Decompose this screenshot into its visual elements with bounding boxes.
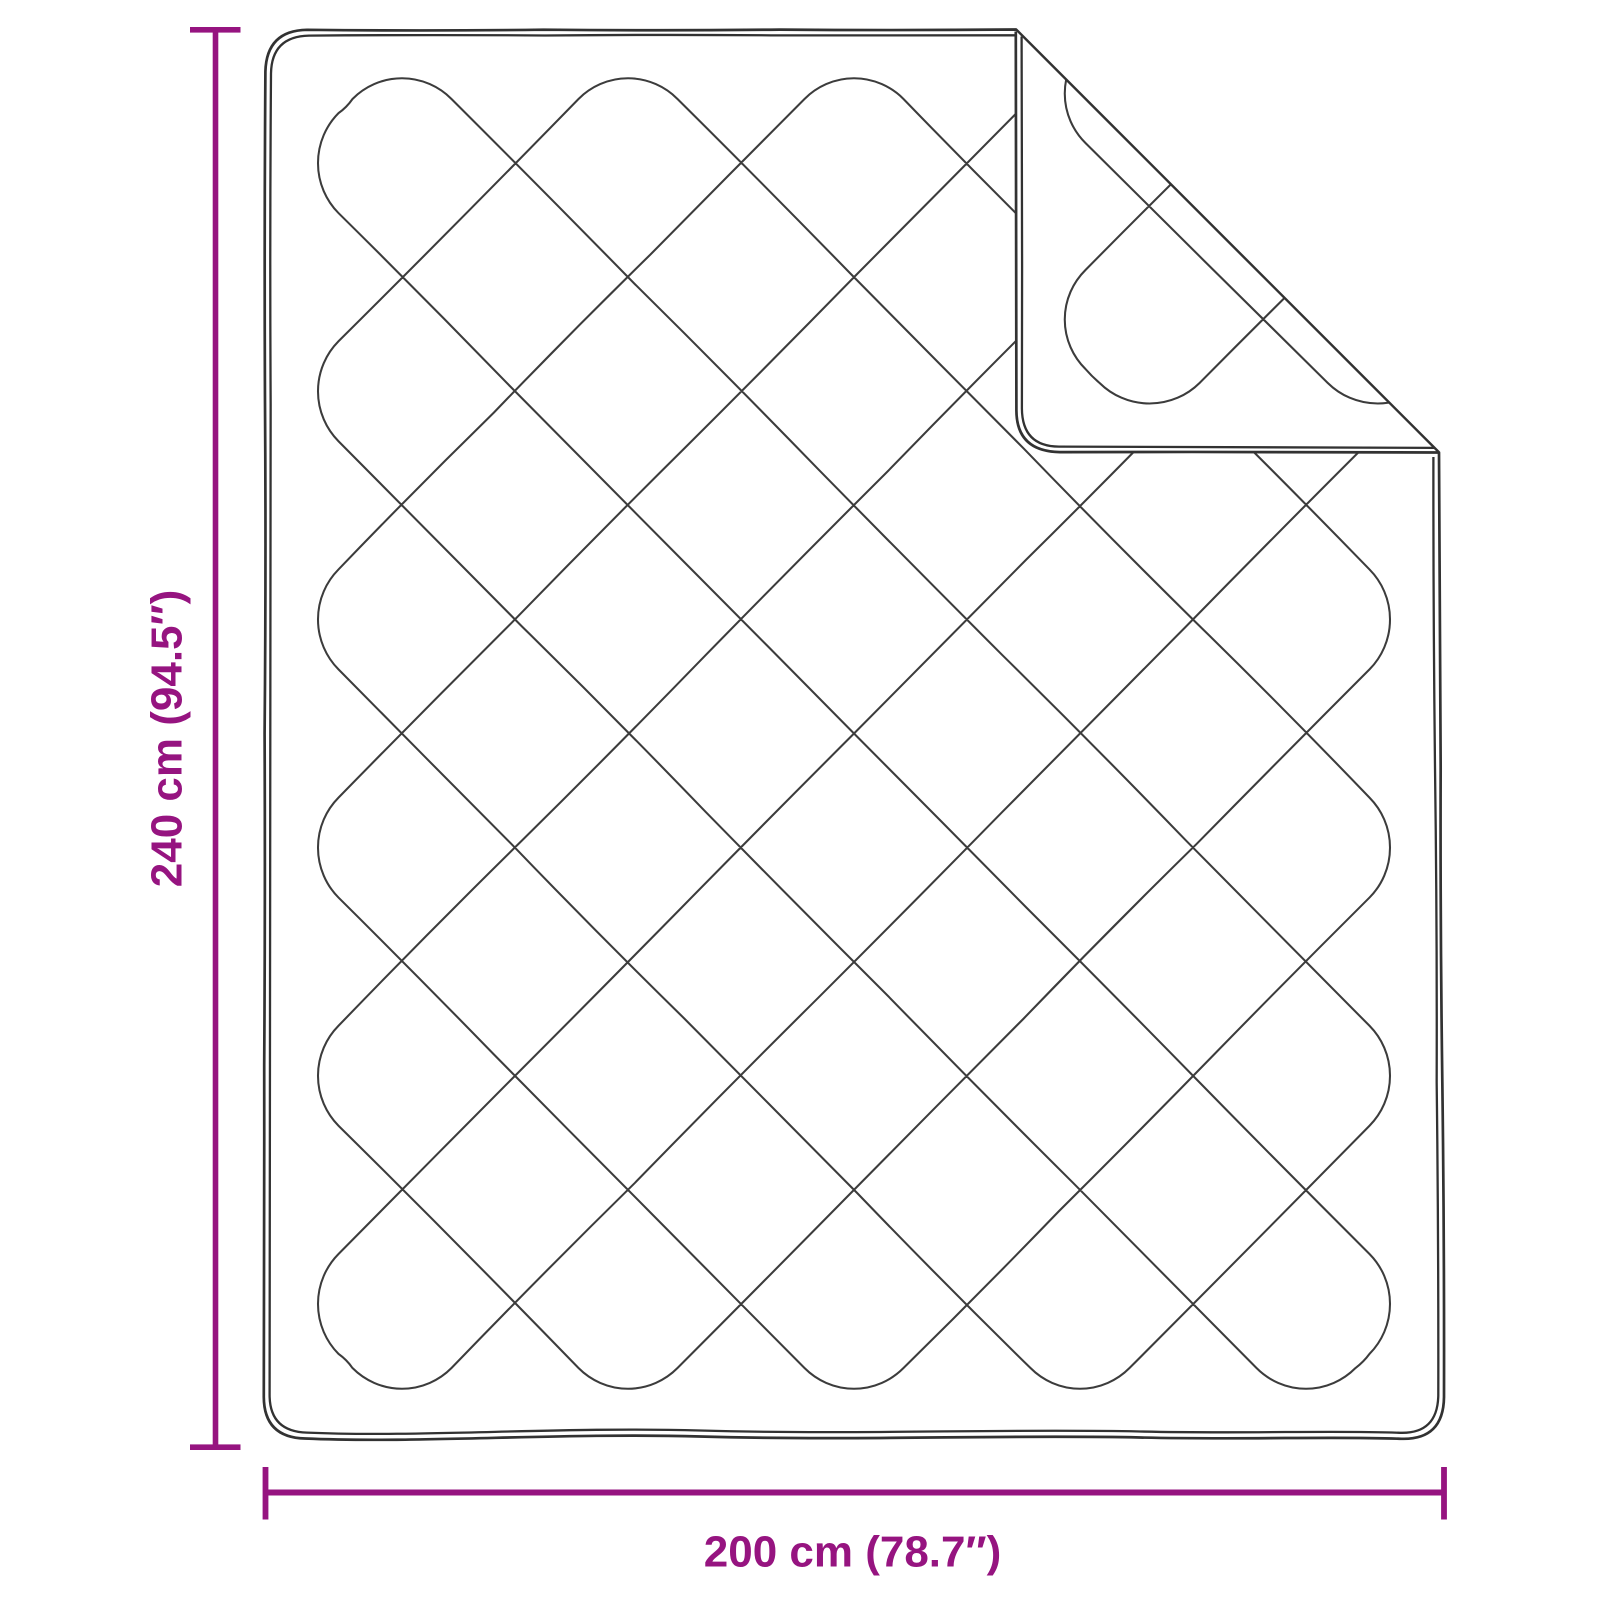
svg-text:200 cm (78.7″): 200 cm (78.7″) xyxy=(704,1528,1001,1577)
svg-text:240 cm (94.5″): 240 cm (94.5″) xyxy=(143,590,192,887)
